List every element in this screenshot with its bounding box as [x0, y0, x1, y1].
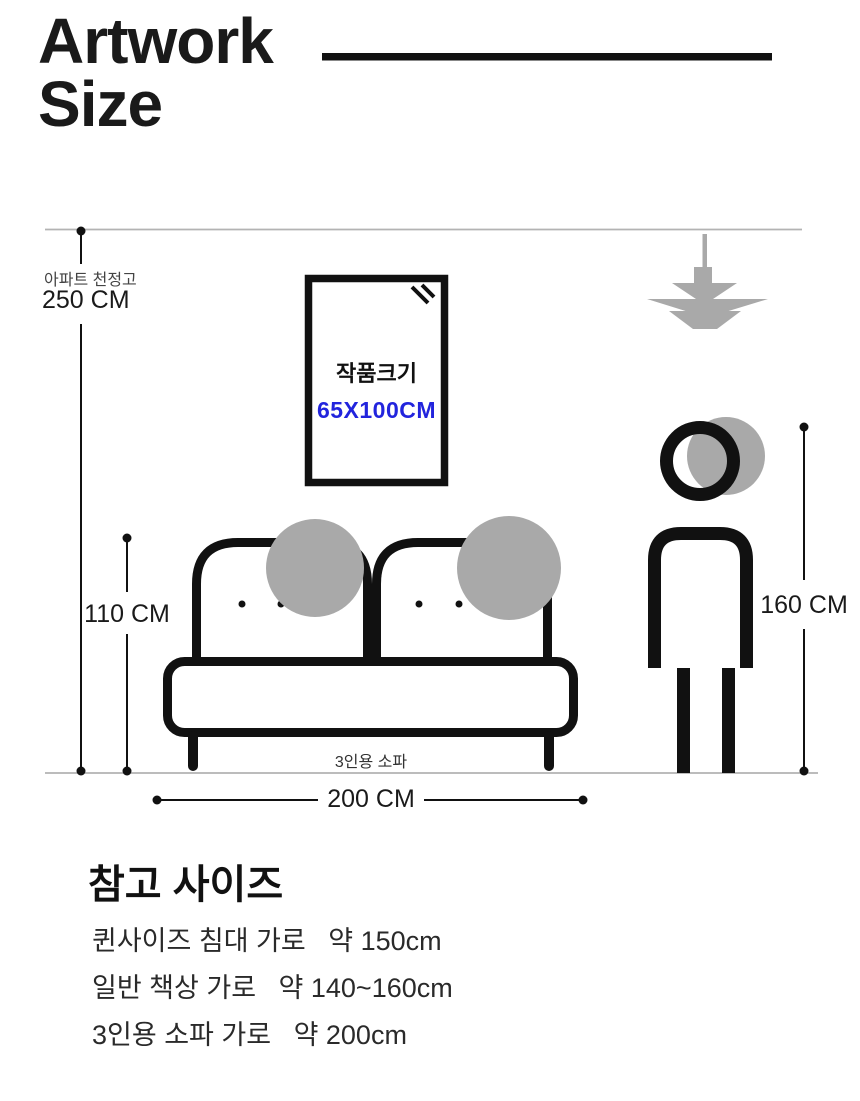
artwork-frame-text: 작품크기 65X100CM: [305, 356, 448, 424]
pendant-lamp-icon: [647, 234, 768, 329]
person-leg-right: [722, 668, 735, 773]
sofa-seat: [168, 662, 574, 733]
ceiling-height-value: 250 CM: [42, 286, 130, 315]
dimension-dot: [123, 534, 132, 543]
accent-circle: [457, 516, 561, 620]
dimension-dot: [800, 423, 809, 432]
title-rule: [322, 53, 772, 61]
reference-sizes-list: 퀸사이즈 침대 가로 약 150cm 일반 책상 가로 약 140~160cm …: [92, 928, 453, 1069]
reference-item-sofa: 3인용 소파 가로 약 200cm: [92, 1022, 453, 1049]
sofa-height-value: 110 CM: [84, 600, 170, 629]
dimension-dot: [123, 767, 132, 776]
dimension-dot: [77, 767, 86, 776]
person-icon: [655, 417, 766, 773]
sofa-caption: 3인용 소파: [335, 748, 407, 772]
artwork-size-value: 65X100CM: [317, 397, 436, 424]
reference-item-bed: 퀸사이즈 침대 가로 약 150cm: [92, 928, 453, 955]
accent-circle: [266, 519, 364, 617]
reference-item-desk: 일반 책상 가로 약 140~160cm: [92, 975, 453, 1002]
dimension-dot: [800, 767, 809, 776]
artwork-size-caption: 작품크기: [336, 356, 417, 388]
sofa-width-value: 200 CM: [327, 785, 415, 814]
dimension-dot: [77, 227, 86, 236]
person-leg-left: [677, 668, 690, 773]
dimension-dot: [579, 796, 588, 805]
person-torso: [655, 534, 747, 669]
dimension-dot: [153, 796, 162, 805]
artwork-size-infographic: Artwork Size: [0, 0, 860, 1101]
reference-sizes-heading: 참고 사이즈: [88, 852, 283, 910]
person-height-value: 160 CM: [760, 591, 848, 620]
